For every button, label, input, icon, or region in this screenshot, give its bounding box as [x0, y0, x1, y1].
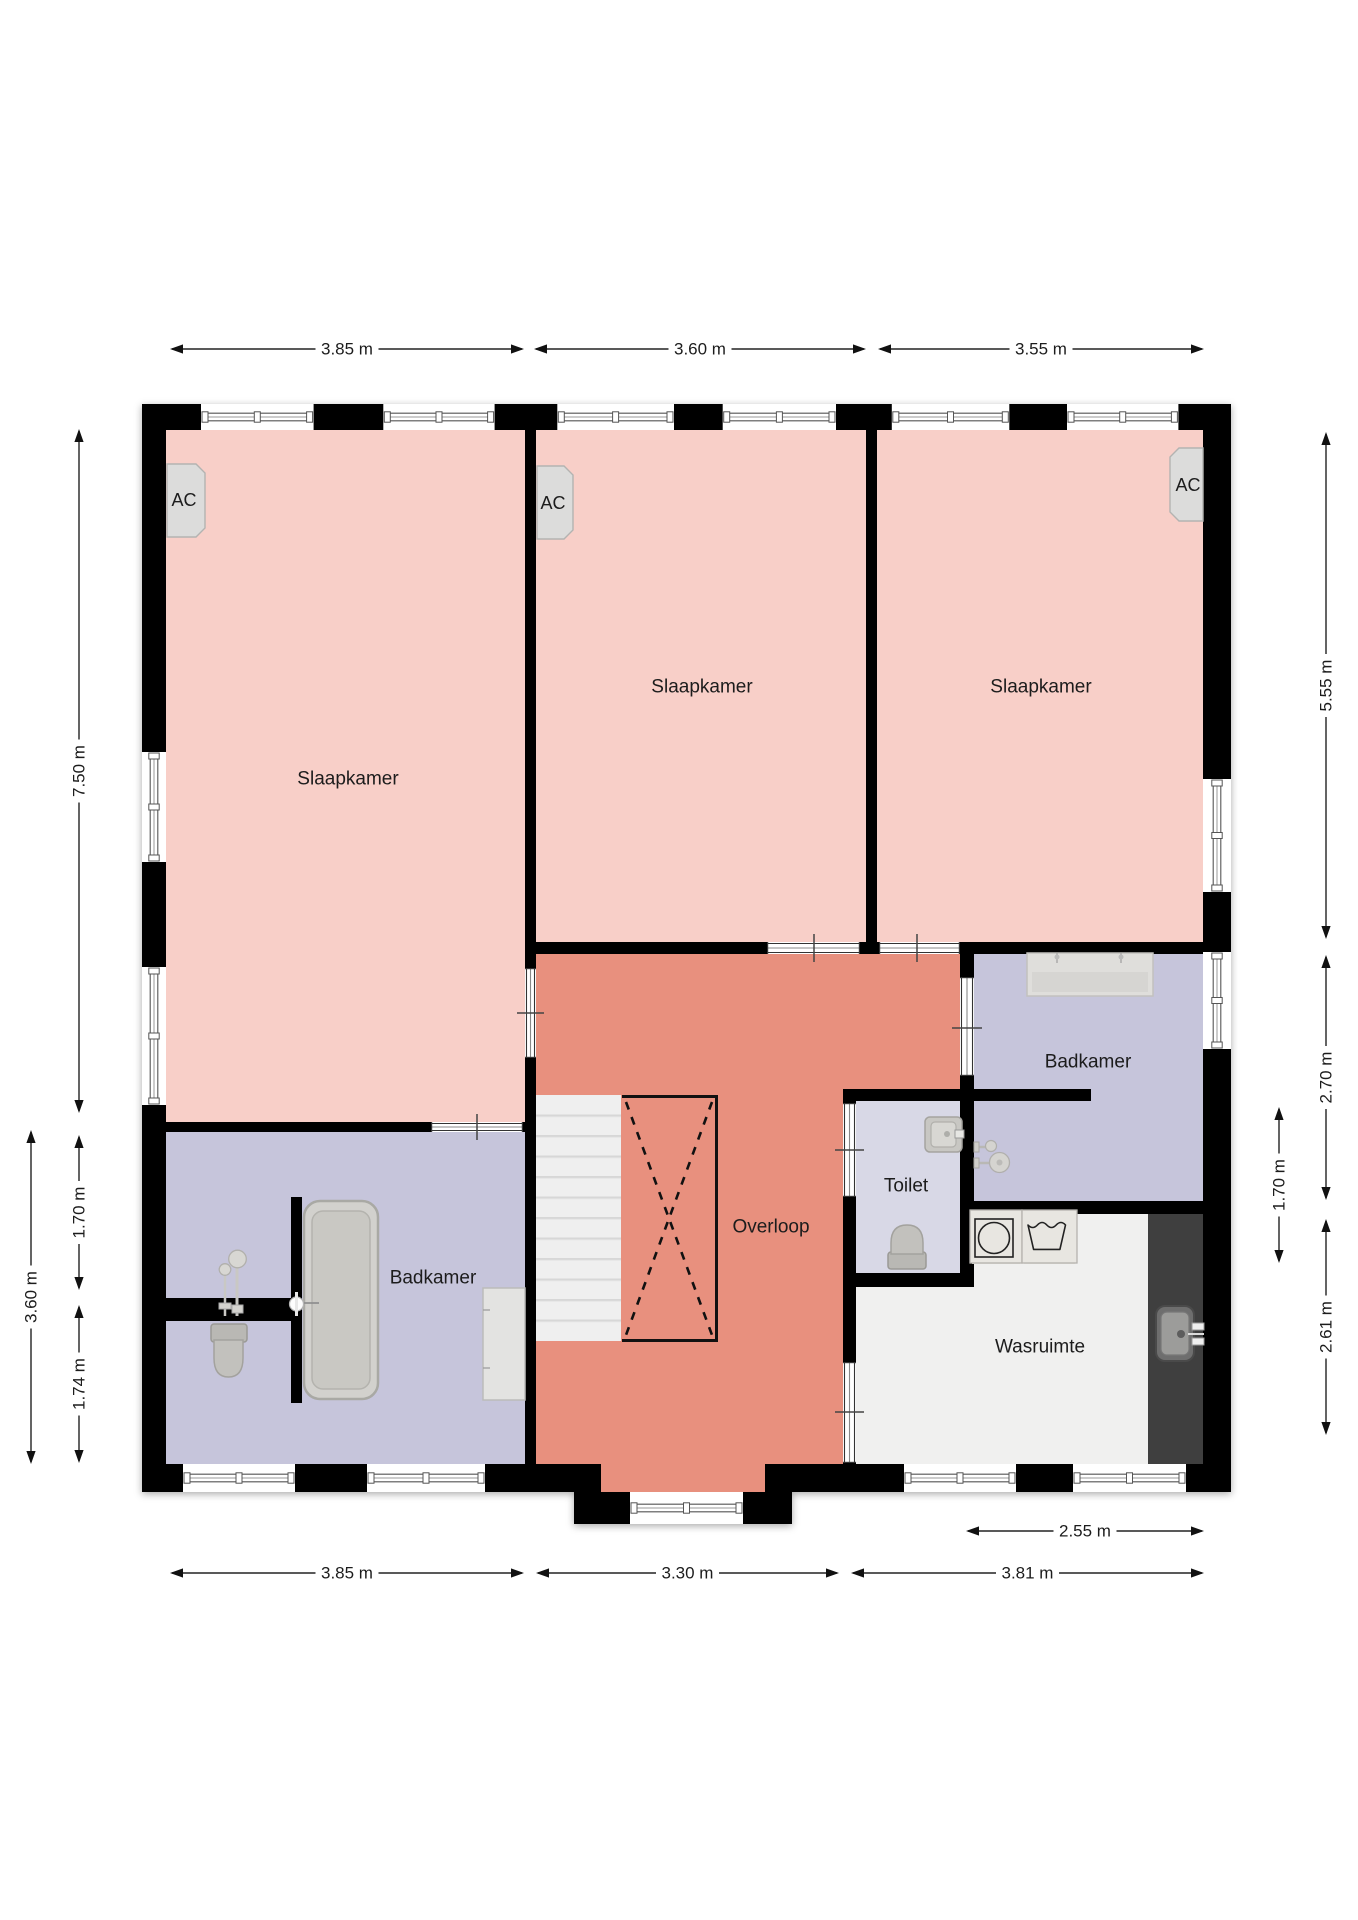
svg-text:AC: AC	[171, 490, 196, 510]
svg-text:3.30 m: 3.30 m	[662, 1564, 714, 1583]
svg-text:Slaapkamer: Slaapkamer	[990, 677, 1092, 698]
svg-text:3.60 m: 3.60 m	[674, 340, 726, 359]
svg-text:Badkamer: Badkamer	[390, 1268, 477, 1289]
svg-text:5.55 m: 5.55 m	[1317, 660, 1336, 712]
svg-text:2.61 m: 2.61 m	[1317, 1301, 1336, 1353]
svg-text:Badkamer: Badkamer	[1045, 1052, 1132, 1073]
svg-text:AC: AC	[1175, 475, 1200, 495]
svg-text:2.70 m: 2.70 m	[1317, 1052, 1336, 1104]
svg-text:Overloop: Overloop	[732, 1217, 809, 1238]
svg-text:3.81 m: 3.81 m	[1002, 1564, 1054, 1583]
svg-text:1.74 m: 1.74 m	[70, 1358, 89, 1410]
svg-text:3.55 m: 3.55 m	[1015, 340, 1067, 359]
svg-text:3.85 m: 3.85 m	[321, 1564, 373, 1583]
svg-text:AC: AC	[540, 493, 565, 513]
svg-text:1.70 m: 1.70 m	[70, 1187, 89, 1239]
svg-text:Slaapkamer: Slaapkamer	[651, 677, 753, 698]
svg-text:3.85 m: 3.85 m	[321, 340, 373, 359]
svg-text:7.50 m: 7.50 m	[70, 745, 89, 797]
svg-text:1.70 m: 1.70 m	[1270, 1159, 1289, 1211]
svg-text:3.60 m: 3.60 m	[22, 1271, 41, 1323]
svg-text:Toilet: Toilet	[884, 1176, 929, 1197]
svg-text:Wasruimte: Wasruimte	[995, 1337, 1085, 1358]
svg-text:Slaapkamer: Slaapkamer	[297, 769, 399, 790]
svg-text:2.55 m: 2.55 m	[1059, 1522, 1111, 1541]
